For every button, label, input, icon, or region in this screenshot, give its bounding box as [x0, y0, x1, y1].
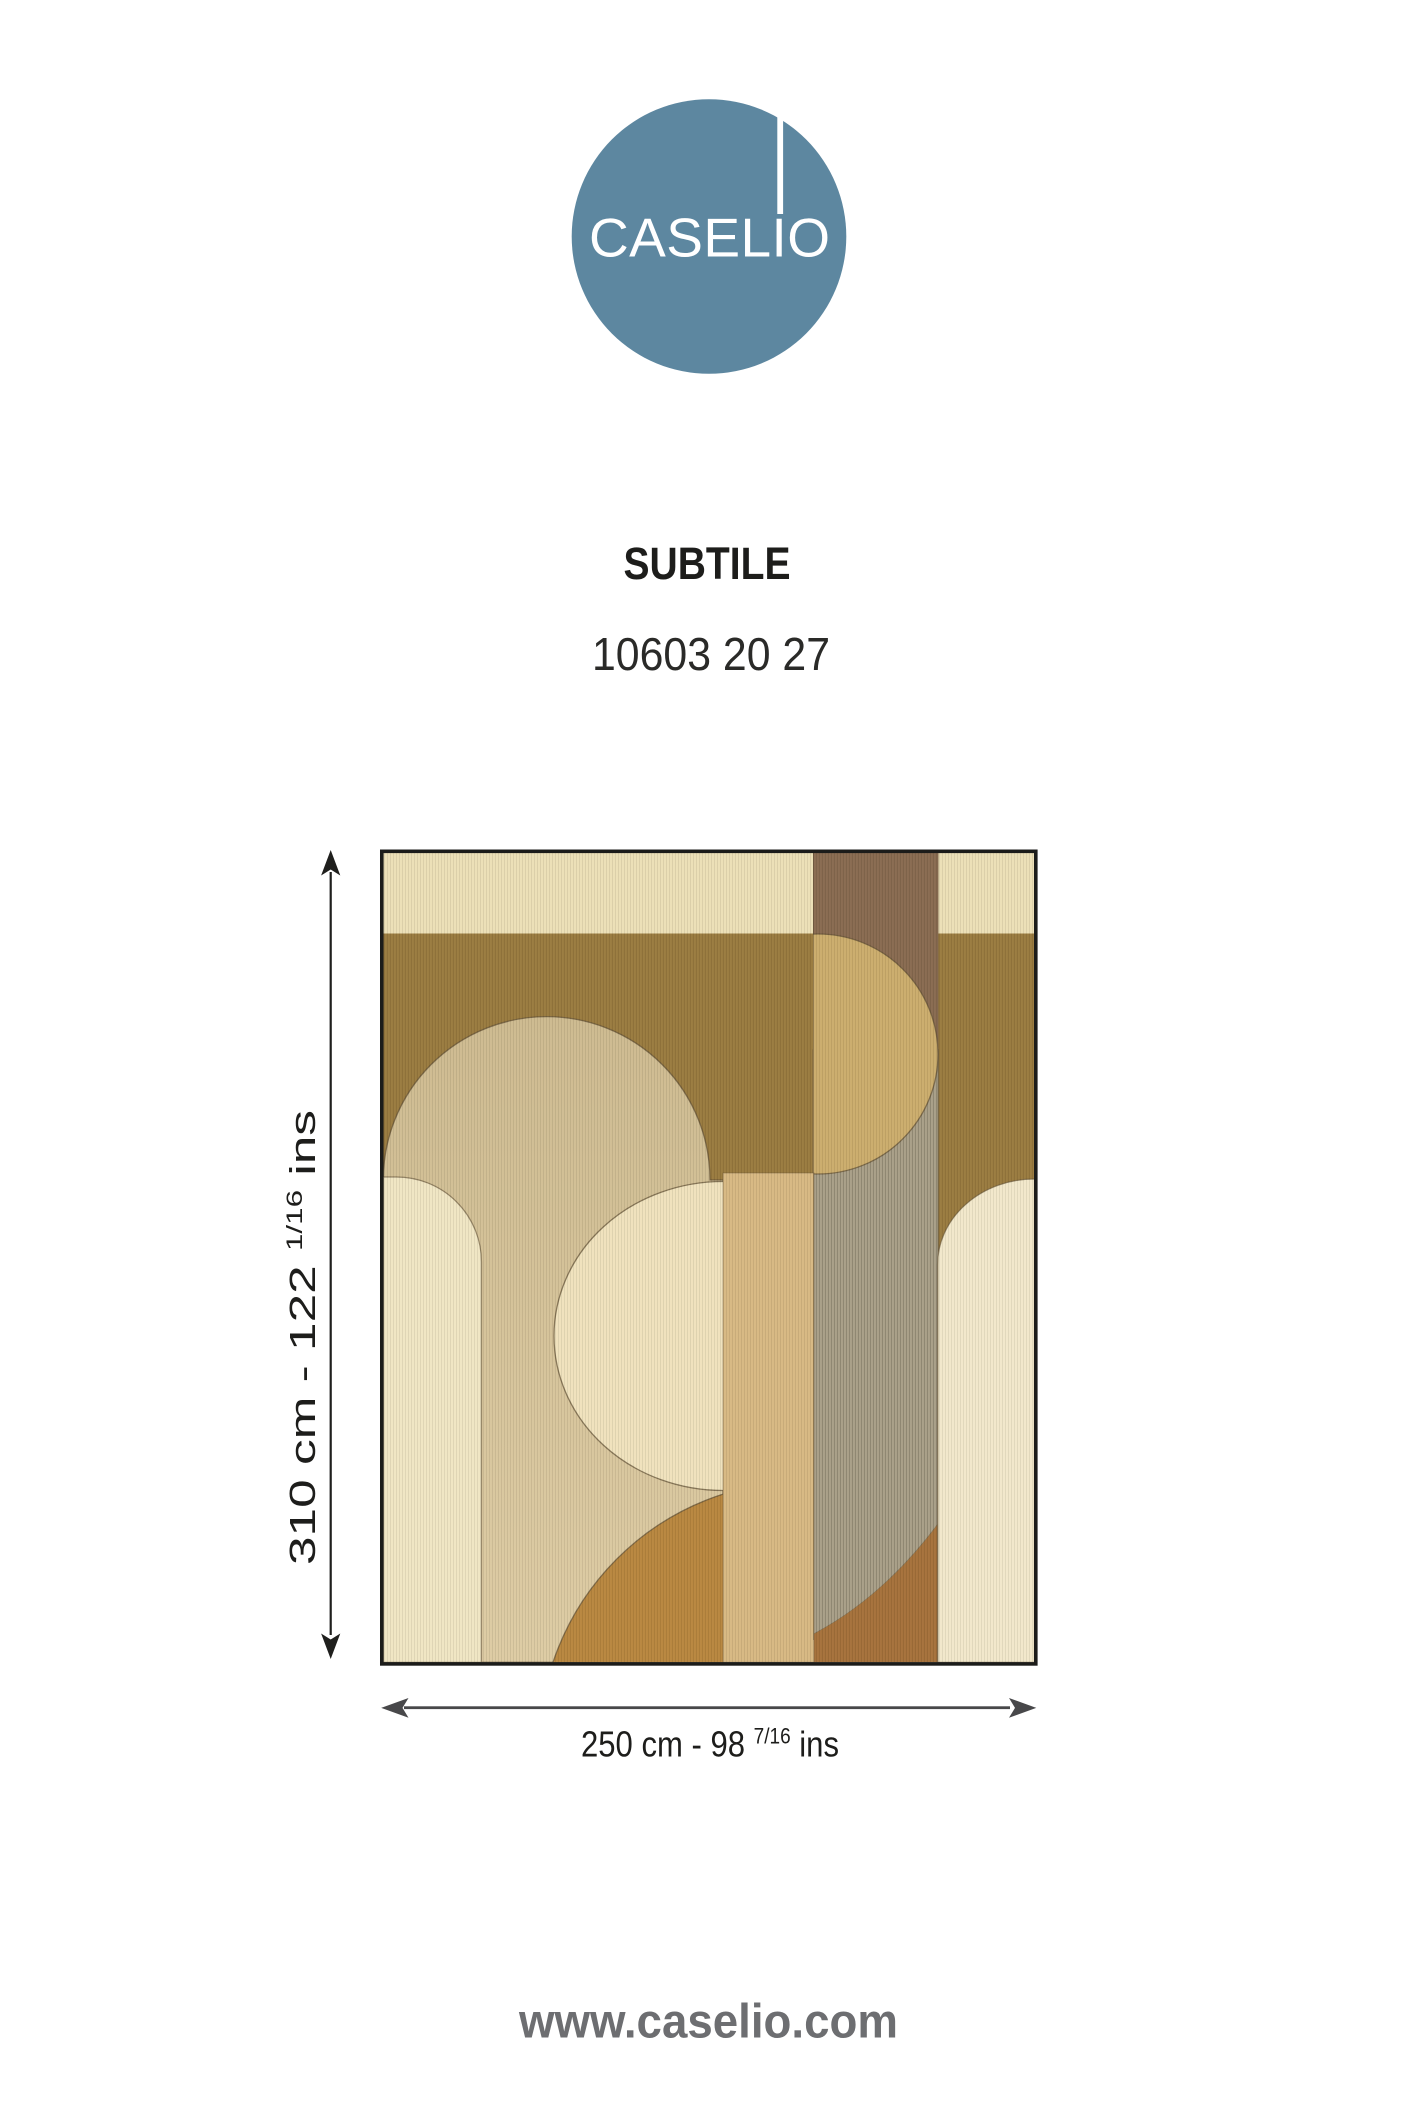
svg-text:www.caselio.com: www.caselio.com	[518, 1996, 898, 2049]
svg-text:310 cm - 122 1/16 ins: 310 cm - 122 1/16 ins	[282, 1110, 323, 1565]
svg-text:SUBTILE: SUBTILE	[624, 538, 791, 589]
svg-text:250 cm - 98 7/16 ins: 250 cm - 98 7/16 ins	[581, 1723, 839, 1764]
svg-text:CASELIO: CASELIO	[589, 207, 830, 269]
svg-text:10603 20 27: 10603 20 27	[592, 628, 830, 680]
